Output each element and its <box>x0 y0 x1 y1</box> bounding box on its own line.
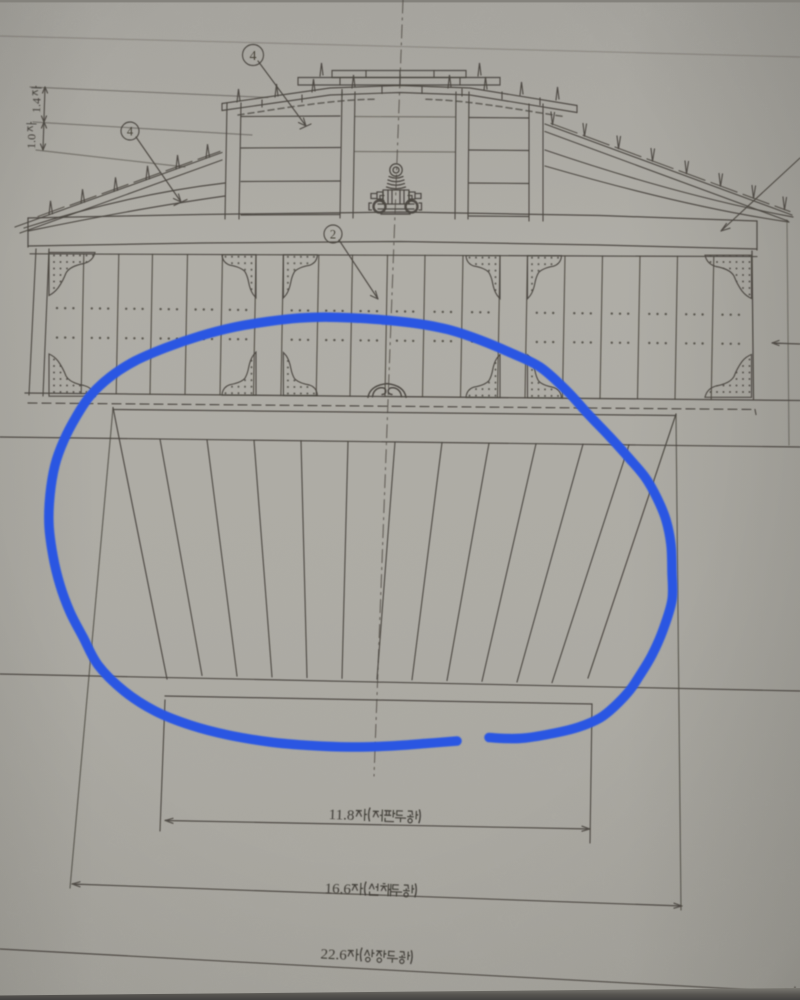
svg-text:11.8: 11.8 <box>328 807 354 824</box>
svg-text:1.4: 1.4 <box>29 98 44 113</box>
svg-text:1.0: 1.0 <box>24 134 39 149</box>
svg-text:22.6: 22.6 <box>320 946 348 963</box>
svg-text:4: 4 <box>250 49 257 64</box>
svg-text:2: 2 <box>330 228 336 242</box>
svg-text:16.6: 16.6 <box>324 881 351 898</box>
svg-text:4: 4 <box>127 125 134 139</box>
